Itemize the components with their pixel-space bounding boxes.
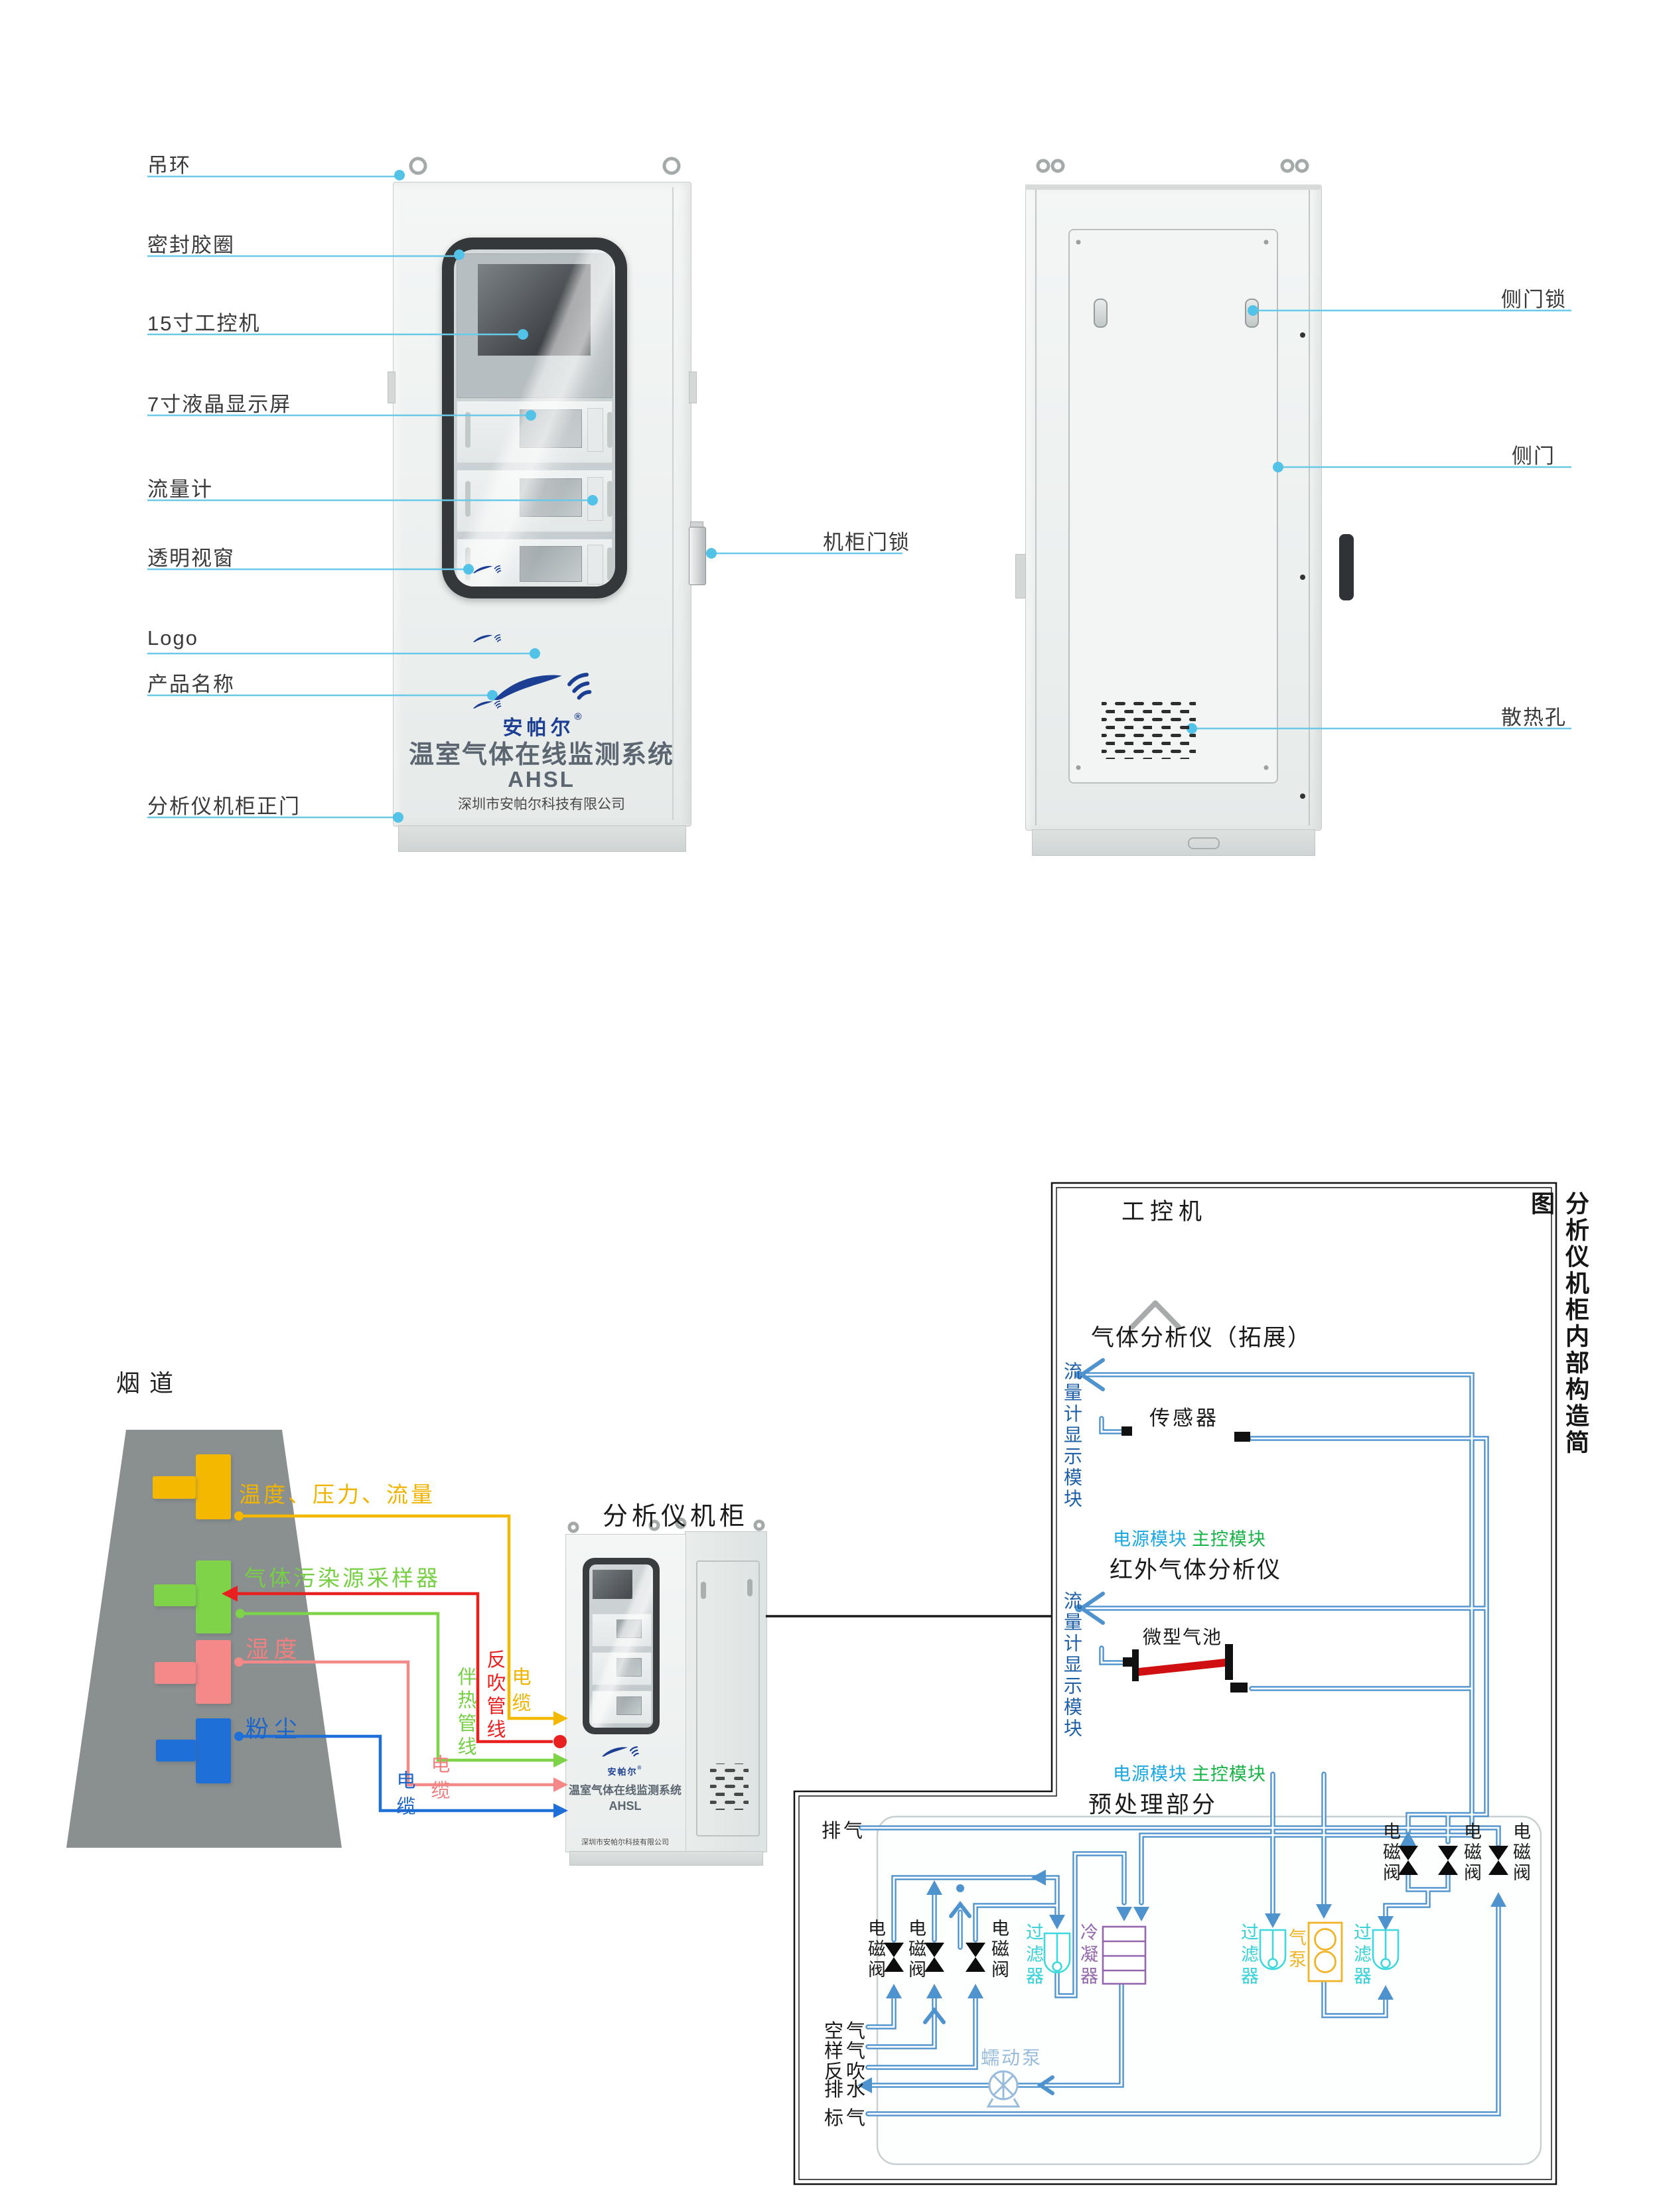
- s1-power-label: 电源模块: [1113, 1525, 1187, 1551]
- filter-label-3: 过滤器: [1348, 1923, 1374, 1988]
- s1-mainctrl-label: 主控模块: [1192, 1525, 1266, 1551]
- pipe-arrows: [857, 1831, 1506, 2093]
- cable-label-blue: 电缆: [390, 1770, 418, 1822]
- ipc-monitor-bar: [1102, 1225, 1210, 1238]
- front-company: 深圳市安帕尔科技有限公司: [406, 794, 677, 813]
- callout-window: 透明视窗: [147, 541, 235, 571]
- condenser-label: 冷凝器: [1075, 1923, 1101, 1988]
- filter-2-icon: [1260, 1930, 1285, 1969]
- cable-label-yellow: 电缆: [506, 1667, 534, 1718]
- peristaltic-pump-icon: [988, 2071, 1019, 2107]
- source-probe-sampler: [154, 1584, 196, 1606]
- front-window-glass: [454, 249, 615, 587]
- s2-flow-display-label: 流量计显示模块: [1058, 1591, 1084, 1740]
- front-cabinet-base: [398, 825, 686, 852]
- mini-window-glass: [589, 1564, 653, 1728]
- callout-logo: Logo: [147, 626, 198, 650]
- callout-front-door: 分析仪机柜正门: [147, 790, 301, 819]
- glass-reflection: [454, 249, 615, 587]
- callout-ipc-15: 15寸工控机: [147, 307, 260, 336]
- source-label-sampler: 气体污染源采样器: [244, 1560, 441, 1592]
- peristaltic-pump-label: 蠕动泵: [981, 2043, 1043, 2070]
- callout-product-name: 产品名称: [147, 667, 235, 697]
- back-cabinet-handle[interactable]: [1339, 534, 1354, 600]
- source-block-humidity: [196, 1640, 231, 1704]
- back-cabinet-top-cap: [1025, 184, 1321, 190]
- valve-top-2: [1438, 1846, 1458, 1875]
- mini-cabinet-label: 分析仪机柜: [603, 1495, 749, 1532]
- mini-company: 深圳市安帕尔科技有限公司: [565, 1836, 685, 1847]
- s2-power-label: 电源模块: [1113, 1760, 1187, 1785]
- front-cabinet-hinge-right: [689, 372, 697, 403]
- mini-product-name: 温室气体在线监测系统: [565, 1781, 685, 1797]
- port-label-drain: 排水: [824, 2074, 868, 2102]
- valve-label-3: 电磁阀: [986, 1919, 1012, 1980]
- mini-side-panel: [696, 1560, 760, 1836]
- flue-label: 烟道: [116, 1364, 182, 1399]
- back-cabinet-hinge: [1015, 554, 1026, 598]
- filter-label-2: 过滤器: [1236, 1923, 1262, 1988]
- gas-pump-icon: [1309, 1923, 1342, 1981]
- ipc-monitor-inner: [1116, 1245, 1196, 1290]
- ipc-monitor-neck: [1151, 1298, 1159, 1306]
- back-base-slot: [1188, 837, 1220, 849]
- preprocess-title: 预处理部分: [1088, 1786, 1218, 1820]
- heat-trace-label: 伴热管线: [451, 1667, 479, 1760]
- side-door-lock-right[interactable]: [1245, 299, 1259, 328]
- port-label-span-gas: 标气: [824, 2103, 868, 2130]
- source-block-temp: [196, 1454, 231, 1519]
- callout-vent-holes: 散热孔: [1501, 701, 1567, 730]
- callout-side-door-lock: 侧门锁: [1501, 283, 1567, 312]
- front-cabinet-door-seam: [672, 187, 674, 820]
- front-model: AHSL: [406, 767, 677, 792]
- s1-display-bar: [1090, 1425, 1112, 1523]
- valve-backflush: [966, 1943, 985, 1972]
- valve-label-1: 电磁阀: [863, 1919, 889, 1980]
- backflush-label: 反吹管线: [480, 1649, 508, 1742]
- s2-power-block: [1128, 1705, 1160, 1758]
- back-cabinet-base: [1032, 829, 1315, 856]
- mini-side-lock-1: [701, 1582, 706, 1599]
- s1-flow-display-label: 流量计显示模块: [1058, 1361, 1084, 1510]
- s2-mainctrl-label: 主控模块: [1192, 1760, 1266, 1785]
- source-label-temp: 温度、压力、流量: [239, 1477, 435, 1509]
- source-probe-humidity: [155, 1662, 196, 1684]
- front-product-name: 温室气体在线监测系统: [406, 734, 677, 770]
- gas-pump-label: 气泵: [1283, 1928, 1309, 1972]
- s2-mainctrl-block: [1191, 1702, 1262, 1758]
- filter-1-icon: [1045, 1933, 1070, 1972]
- mini-model: AHSL: [565, 1799, 685, 1813]
- valve-span: [1488, 1846, 1508, 1875]
- source-block-sampler: [196, 1560, 231, 1633]
- side-door-lock-left[interactable]: [1094, 299, 1108, 328]
- source-probe-temp: [153, 1476, 196, 1499]
- valve-label-4: 电磁阀: [1378, 1822, 1404, 1884]
- callout-side-door: 侧门: [1512, 439, 1555, 469]
- exhaust-label: 排气: [822, 1815, 865, 1843]
- back-cabinet-seam-right: [1309, 190, 1310, 825]
- s2-flowmeter-block: [1087, 1599, 1123, 1648]
- cable-label-pink: 电缆: [425, 1754, 453, 1806]
- s1-power-block: [1128, 1465, 1160, 1521]
- source-block-dust: [196, 1718, 231, 1783]
- panel-side-title: 分析仪机柜内部构造简图: [1524, 1191, 1593, 1456]
- source-label-humidity: 湿度: [246, 1631, 303, 1665]
- figure-canvas: 安帕尔® 温室气体在线监测系统 AHSL 深圳市安帕尔科技有限公司 安帕尔® 温…: [0, 0, 1659, 2212]
- source-label-dust: 粉尘: [246, 1710, 303, 1744]
- section1-title: 气体分析仪（拓展）: [1091, 1319, 1312, 1353]
- filter-3-icon: [1373, 1930, 1398, 1969]
- cabinet-door-lock-handle[interactable]: [689, 527, 706, 585]
- s2-display-bar: [1090, 1655, 1112, 1753]
- preprocess-inner-box: [877, 1817, 1541, 2164]
- back-cabinet-seam-left: [1035, 190, 1037, 825]
- callout-door-lock: 机柜门锁: [823, 525, 910, 555]
- callout-flowmeter: 流量计: [147, 472, 213, 502]
- callout-lines: [147, 176, 1571, 817]
- s1-sensor-label: 传感器: [1149, 1401, 1219, 1431]
- mini-cabinet-base: [569, 1851, 763, 1866]
- valve-label-2: 电磁阀: [903, 1919, 929, 1980]
- s2-gascell-label: 微型气池: [1143, 1623, 1222, 1649]
- mini-brand: 安帕尔®: [565, 1765, 685, 1777]
- callout-lifting-ring: 吊环: [147, 149, 191, 178]
- s1-mainctrl-block: [1191, 1462, 1262, 1521]
- valve-label-6: 电磁阀: [1508, 1822, 1534, 1884]
- ipc-label: 工控机: [1121, 1193, 1207, 1227]
- callout-seal-ring: 密封胶圈: [147, 228, 235, 258]
- brand-reg: ®: [574, 711, 585, 723]
- solenoid-valve-icons: [884, 1846, 1508, 1972]
- s1-flowmeter-block: [1087, 1369, 1123, 1418]
- section2-title: 红外气体分析仪: [1110, 1551, 1281, 1585]
- valve-label-5: 电磁阀: [1459, 1822, 1484, 1884]
- condenser-icon: [1103, 1927, 1145, 1984]
- filter-label-1: 过滤器: [1021, 1923, 1046, 1988]
- mini-side-lock-2: [747, 1579, 753, 1596]
- callout-lcd-7: 7寸液晶显示屏: [147, 387, 291, 417]
- source-probe-dust: [156, 1740, 196, 1762]
- front-cabinet-hinge-left: [388, 372, 396, 403]
